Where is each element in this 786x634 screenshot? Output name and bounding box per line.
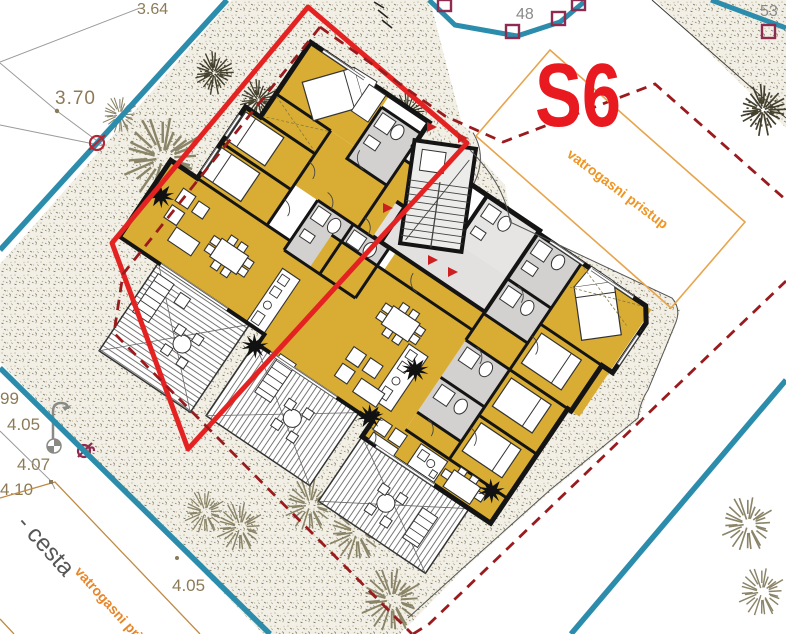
svg-text:4.05: 4.05 [172, 576, 205, 595]
svg-text:3.64: 3.64 [137, 1, 168, 18]
svg-text:S6: S6 [535, 46, 621, 146]
svg-text:4.05: 4.05 [7, 415, 40, 434]
svg-text:48: 48 [516, 6, 534, 23]
svg-text:53: 53 [760, 3, 778, 20]
svg-text:3.70: 3.70 [55, 88, 96, 109]
svg-text:99: 99 [0, 389, 19, 408]
